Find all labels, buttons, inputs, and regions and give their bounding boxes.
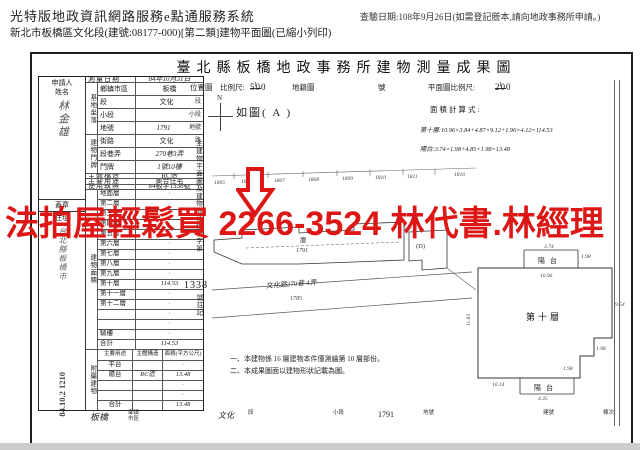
floor10-outline [478,268,612,378]
annex-header: 主體構造 [133,350,163,360]
dim-label: 1.98 [596,346,606,352]
as-figure-label: 如圖( A ) [236,104,292,120]
annex-row: 陽台RC造13.48 [98,371,203,381]
strip-section: 文化 [218,410,234,421]
annex-use [98,381,133,390]
floor-value: · [138,331,201,338]
field-value: 文化 [138,138,195,145]
site-row: 地號1791地號 [98,122,203,134]
dim-label: 1.98 [563,366,573,372]
dim-label: 10.14 [492,381,505,388]
floor10-label: 第十層 [526,311,562,322]
road-name-handwritten: 文化路270巷 4弄 [266,278,318,290]
scale-row: 位置圖 比例尺: 1 500 地籍圖 號 平面圖比例尺: 1 200 [190,82,630,102]
field-label: 鄉鎮市區 [98,83,136,95]
north-compass-icon: N [208,96,234,132]
side-note-suffix: 號註記 [193,294,203,317]
annex-structure [133,361,163,370]
dim-label: 11.83 [466,314,472,326]
annex-structure [133,381,163,390]
field-value: 文化 [138,99,195,106]
floor-row: 第七層· [98,250,203,260]
floor-label: 合計 [98,340,136,349]
floor-label [98,310,136,319]
strip-block-label: 棟次 [603,410,614,416]
site-location-group: 基地坐落 鄉鎮市區板橋 段文化段 小段小段 地號1791地號 [86,83,203,135]
floor-row: 第八層· [98,260,203,270]
scale-denominator: 500 [250,82,267,92]
door-row: 段巷弄270巷3弄 [98,148,203,161]
site-row: 小段小段 [98,109,203,122]
floor-row: 騎樓· [98,330,203,340]
scale-label: 比例尺: [220,82,245,93]
remark-line-2: 二、本成果圖面以建物形狀記載為圖。 [230,366,384,378]
usage-label: 主要用途 [86,179,136,183]
dim-label: 1.98 [581,254,591,260]
annex-use: 陽台 [98,371,133,380]
floor-row: 第十一層· [98,290,203,300]
annex-group-label: 附屬建物 [86,350,98,410]
lot-number: 1809 [342,176,353,182]
annex-row: 合計13.48 [98,401,203,410]
floor-value: 114.53 [138,341,201,348]
floor-row: 第十二層· [98,300,203,310]
site-row: 段文化段 [98,96,203,109]
annex-header-row: 主要用途 主體構造 面積(平方公尺) [98,350,203,361]
advertisement-overlay-text: 法拍屋輕鬆買 2266-3524 林代書.林經理 [5,196,604,245]
site-row: 鄉鎮市區板橋 [98,83,203,96]
annex-row: 平台· [98,361,203,371]
floor-label: 第十層 [98,280,136,289]
strip-section-label: 段 [248,410,254,416]
site-group-label: 基地坐落 [86,83,98,134]
annex-row: · [98,381,203,391]
strip-parcel-label: 地號 [423,410,434,416]
field-label: 街路 [98,135,136,147]
floor-label [98,320,136,329]
strip-township: 板橋 [90,410,108,423]
dim-label: 9.54 [615,301,625,308]
field-label: 段巷弄 [98,148,136,160]
field-label: 小段 [98,109,136,121]
structure-label: 主體構造 [86,174,136,178]
area-calc-title: 面積計算式: [430,104,482,115]
lot-number: 1805 [214,180,225,186]
field-label: 地號 [98,122,136,134]
area-calc-balcony: 陽台:3.74×1.98+4.85×1.98=13.48 [420,144,510,153]
floor-value: · [138,321,201,328]
balcony-top-label: 陽台 [538,256,562,265]
survey-date-label: 測量日期 [86,77,136,82]
floor-row: · [98,310,203,320]
lot-number: 1811 [407,174,418,180]
floor-value: · [138,291,201,298]
applicant-label: 申請人 姓名 [52,77,73,97]
field-label: 段 [98,96,136,108]
query-date: 查驗日期:108年9月26日(如需登記謄本,請向地政事務所申請。) [360,10,600,23]
floor-row: 第九層· [98,270,203,280]
floor-label: 騎樓 [98,330,136,339]
remark-line-1: 一、本建物係 16 層建物本件僅測繪第 10 層部份。 [230,354,384,366]
area-calc-floor10: 第十層:10.96×3.84+4.87×9.12+1.96×4.12=114.5… [420,125,553,134]
strip-subsection-label: 小段 [333,410,344,416]
field-label: 門牌 [98,161,136,173]
floor-label: 第十二層 [98,300,136,309]
lot-number: 1808 [308,177,319,183]
floor-row: 合計114.53 [98,340,203,349]
field-suffix: 小段 [189,112,201,118]
floor-value: · [138,301,201,308]
address-handwritten: 台北縣板橋市 [58,223,66,379]
annex-header: 面積(平方公尺) [163,352,203,358]
annex-group: 附屬建物 主要用途 主體構造 面積(平方公尺) 平台· 陽台RC造13.48 ·… [86,350,203,410]
annex-area: · [163,392,203,399]
floor-value: · [138,271,201,278]
annex-area: · [163,382,203,389]
location-map-label: 位置圖 [190,82,213,93]
document-subtitle: 新北市板橋區文化段(建號:08177-000)[第二類]建物平面圖(已縮小列印) [10,25,331,40]
dim-label: 4.35 [538,395,548,402]
annex-use: 合計 [98,401,133,410]
door-plate-group: 建物門牌 街路文化路 段巷弄270巷3弄 門牌1號10樓 [86,135,203,174]
plan-scale-label: 平面圖比例尺: [428,82,475,93]
system-title: 光特版地政資訊網路服務e點通服務系統 [10,6,255,25]
annex-structure [133,401,163,410]
floor-value: · [138,261,201,268]
strip-label-line: 市區 [128,416,139,422]
applicant-label-bottom: 姓名 [52,88,73,97]
annex-structure: RC造 [133,371,163,380]
page-title: 臺北縣板橋地政事務所建物測量成果圖 [32,57,631,77]
annex-area: · [163,362,203,369]
strip-building-no-label: 建號 [543,410,554,416]
document-frame: 臺北縣板橋地政事務所建物測量成果圖 申請人 姓名 林金雄 蓋章 住址 台北縣板橋… [30,52,633,445]
annex-structure [133,391,163,400]
floor-label: 第九層 [98,270,136,279]
plan-scale-denominator: 200 [495,82,512,92]
floor-value: · [138,311,201,318]
cadastre-label: 地籍圖 [292,82,315,93]
annex-area: 13.48 [163,402,203,409]
bottom-gray-bar [0,443,640,450]
annex-use [98,391,133,400]
applicant-label-top: 申請人 [52,79,73,88]
door-row: 門牌1號10樓 [98,161,203,173]
door-group-label: 建物門牌 [86,135,98,173]
field-suffix: 地號 [189,125,201,131]
road-parcel-number: 1785 [290,296,302,302]
field-value: 1791 [138,125,189,132]
floor-label: 第七層 [98,250,136,259]
number-label: 號 [378,82,386,93]
floor-label: 第十一層 [98,290,136,299]
applicant-box: 申請人 姓名 林金雄 蓋章 [39,77,85,212]
balcony-bottom-label: 陽台 [534,383,558,392]
annex-header: 主要用途 [98,350,133,360]
strip-parcel: 1791 [378,410,394,419]
annex-area: 13.48 [163,372,203,379]
annex-use: 平台 [98,361,133,370]
scanned-survey-document-page: 光特版地政資訊網路服務e點通服務系統 新北市板橋區文化段(建號:08177-00… [0,0,640,450]
door-row: 街路文化路 [98,135,203,148]
dim-label: 10.96 [540,273,553,279]
applicant-name-handwritten: 林金雄 [57,97,68,199]
building-parcel-number: 1791 [296,248,308,254]
floor-plan-drawing: 陽台 第十層 陽台 3.74 1.98 10.96 11.83 9.54 1.9… [460,240,640,402]
floor-row: · [98,320,203,330]
north-label: N [217,94,222,102]
remarks: 一、本建物係 16 層建物本件僅測繪第 10 層部份。 二、本成果圖面以建物形狀… [230,354,384,378]
bottom-location-strip: 板橋 鄉鎮 市區 文化 段 小段 1791 地號 建號 棟次 [38,410,626,428]
license-label: 使用執照 [86,185,136,189]
lot-number: 1816 [454,172,465,178]
lot-number: 1810 [375,175,386,181]
floor-label: 第八層 [98,260,136,269]
annex-row: · [98,391,203,401]
